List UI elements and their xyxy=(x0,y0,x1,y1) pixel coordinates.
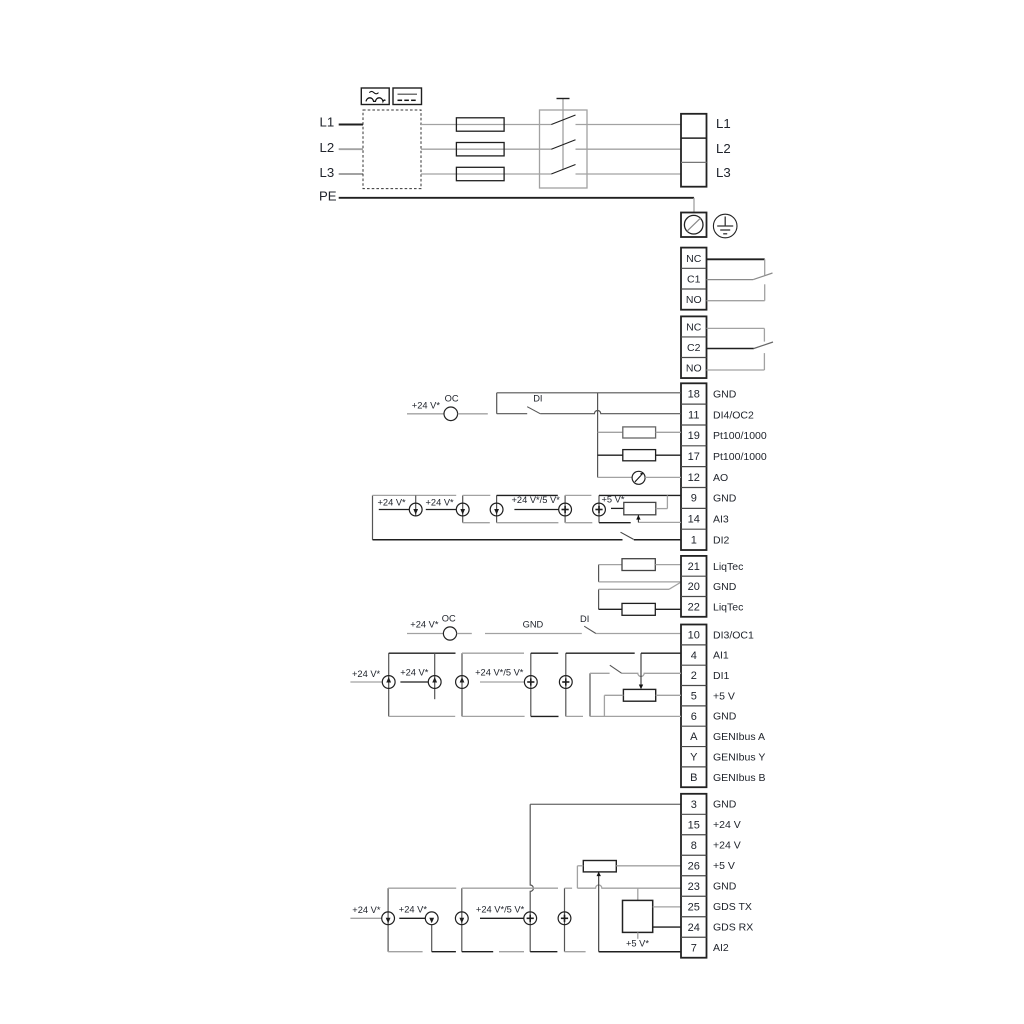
svg-text:Pt100/1000: Pt100/1000 xyxy=(713,451,767,463)
svg-text:26: 26 xyxy=(688,860,700,872)
svg-text:GENIbus Y: GENIbus Y xyxy=(713,751,765,763)
svg-text:11: 11 xyxy=(688,409,699,421)
svg-text:22: 22 xyxy=(688,601,700,613)
svg-text:+5 V: +5 V xyxy=(713,860,735,872)
svg-text:GND: GND xyxy=(713,711,737,723)
svg-text:+24 V*: +24 V* xyxy=(412,401,441,411)
svg-text:L1: L1 xyxy=(716,116,731,131)
svg-text:+5 V: +5 V xyxy=(713,690,735,702)
svg-text:14: 14 xyxy=(688,514,700,526)
svg-text:L3: L3 xyxy=(716,165,731,180)
svg-text:+24 V*: +24 V* xyxy=(410,619,439,629)
svg-text:NC: NC xyxy=(686,253,702,265)
svg-text:DI2: DI2 xyxy=(713,534,730,546)
svg-text:19: 19 xyxy=(688,430,700,442)
svg-text:+24 V: +24 V xyxy=(713,819,741,831)
svg-text:2: 2 xyxy=(691,670,697,682)
svg-text:+24 V: +24 V xyxy=(713,840,741,852)
svg-text:+24 V*/5 V*: +24 V*/5 V* xyxy=(475,668,524,678)
svg-text:+24 V*: +24 V* xyxy=(378,497,407,507)
svg-text:NO: NO xyxy=(686,294,702,306)
svg-text:L2: L2 xyxy=(716,141,731,156)
svg-text:+5 V*: +5 V* xyxy=(602,495,625,505)
svg-text:1: 1 xyxy=(691,534,697,546)
svg-text:18: 18 xyxy=(688,389,700,401)
svg-text:AI2: AI2 xyxy=(713,942,729,954)
svg-text:4: 4 xyxy=(691,650,697,662)
svg-text:DI1: DI1 xyxy=(713,670,730,682)
svg-text:L3: L3 xyxy=(320,165,335,180)
svg-text:NC: NC xyxy=(686,321,702,333)
svg-text:12: 12 xyxy=(688,472,700,484)
svg-text:23: 23 xyxy=(688,881,700,893)
svg-text:AO: AO xyxy=(713,472,728,484)
svg-text:+24 V*/5 V*: +24 V*/5 V* xyxy=(476,905,525,915)
svg-text:PE: PE xyxy=(319,189,337,204)
svg-text:7: 7 xyxy=(691,942,697,954)
svg-text:L2: L2 xyxy=(320,140,335,155)
svg-text:NO: NO xyxy=(686,363,702,375)
svg-text:DI: DI xyxy=(533,394,542,404)
svg-text:21: 21 xyxy=(688,561,700,573)
svg-text:20: 20 xyxy=(688,581,700,593)
svg-text:+24 V*/5 V*: +24 V*/5 V* xyxy=(512,495,561,505)
svg-text:C1: C1 xyxy=(687,273,701,285)
svg-text:9: 9 xyxy=(691,493,697,505)
svg-text:6: 6 xyxy=(691,711,697,723)
svg-text:A: A xyxy=(690,731,698,743)
svg-text:LiqTec: LiqTec xyxy=(713,601,743,613)
svg-text:17: 17 xyxy=(688,451,700,463)
svg-text:AI3: AI3 xyxy=(713,513,729,525)
svg-text:+24 V*: +24 V* xyxy=(399,905,428,915)
svg-text:GDS TX: GDS TX xyxy=(713,901,752,913)
svg-text:GND: GND xyxy=(713,799,737,811)
svg-text:DI4/OC2: DI4/OC2 xyxy=(713,409,754,421)
svg-text:Y: Y xyxy=(690,752,698,764)
svg-text:GND: GND xyxy=(713,581,737,593)
svg-text:AI1: AI1 xyxy=(713,650,729,662)
svg-text:5: 5 xyxy=(691,690,697,702)
svg-text:GND: GND xyxy=(713,881,737,893)
svg-text:+24 V*: +24 V* xyxy=(400,668,429,678)
svg-text:GND: GND xyxy=(523,619,544,629)
svg-text:15: 15 xyxy=(688,819,700,831)
svg-text:L1: L1 xyxy=(320,114,335,129)
svg-text:GENIbus A: GENIbus A xyxy=(713,731,765,743)
svg-text:C2: C2 xyxy=(687,342,701,354)
svg-text:OC: OC xyxy=(445,393,459,403)
svg-text:B: B xyxy=(690,772,697,784)
svg-text:OC: OC xyxy=(442,614,456,624)
svg-text:GND: GND xyxy=(713,493,737,505)
svg-text:GND: GND xyxy=(713,388,737,400)
svg-text:25: 25 xyxy=(688,901,700,913)
svg-text:+24 V*: +24 V* xyxy=(352,905,381,915)
svg-text:DI: DI xyxy=(580,614,589,624)
svg-text:GDS RX: GDS RX xyxy=(713,922,753,934)
svg-text:3: 3 xyxy=(691,799,697,811)
svg-text:+24 V*: +24 V* xyxy=(426,497,455,507)
svg-text:+24 V*: +24 V* xyxy=(352,669,381,679)
svg-text:GENIbus B: GENIbus B xyxy=(713,772,766,784)
svg-text:DI3/OC1: DI3/OC1 xyxy=(713,629,754,641)
svg-text:10: 10 xyxy=(688,629,700,641)
svg-text:24: 24 xyxy=(688,922,700,934)
svg-text:Pt100/1000: Pt100/1000 xyxy=(713,430,767,442)
svg-text:8: 8 xyxy=(691,840,697,852)
svg-text:+5 V*: +5 V* xyxy=(626,938,649,948)
svg-text:LiqTec: LiqTec xyxy=(713,561,743,573)
